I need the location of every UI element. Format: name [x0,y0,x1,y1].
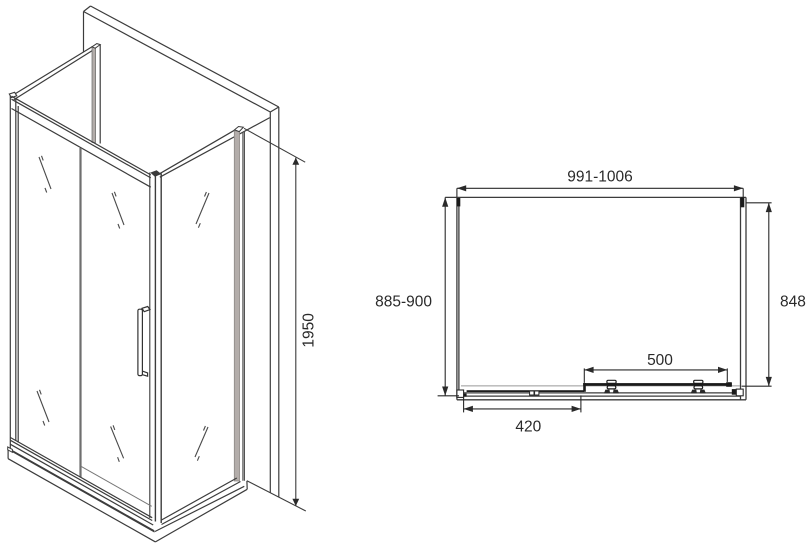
svg-text:420: 420 [515,419,541,436]
svg-text:1950: 1950 [300,313,317,348]
svg-text:500: 500 [647,352,673,369]
svg-text:885-900: 885-900 [375,294,432,311]
svg-text:991-1006: 991-1006 [567,169,633,186]
svg-text:848: 848 [780,293,806,310]
